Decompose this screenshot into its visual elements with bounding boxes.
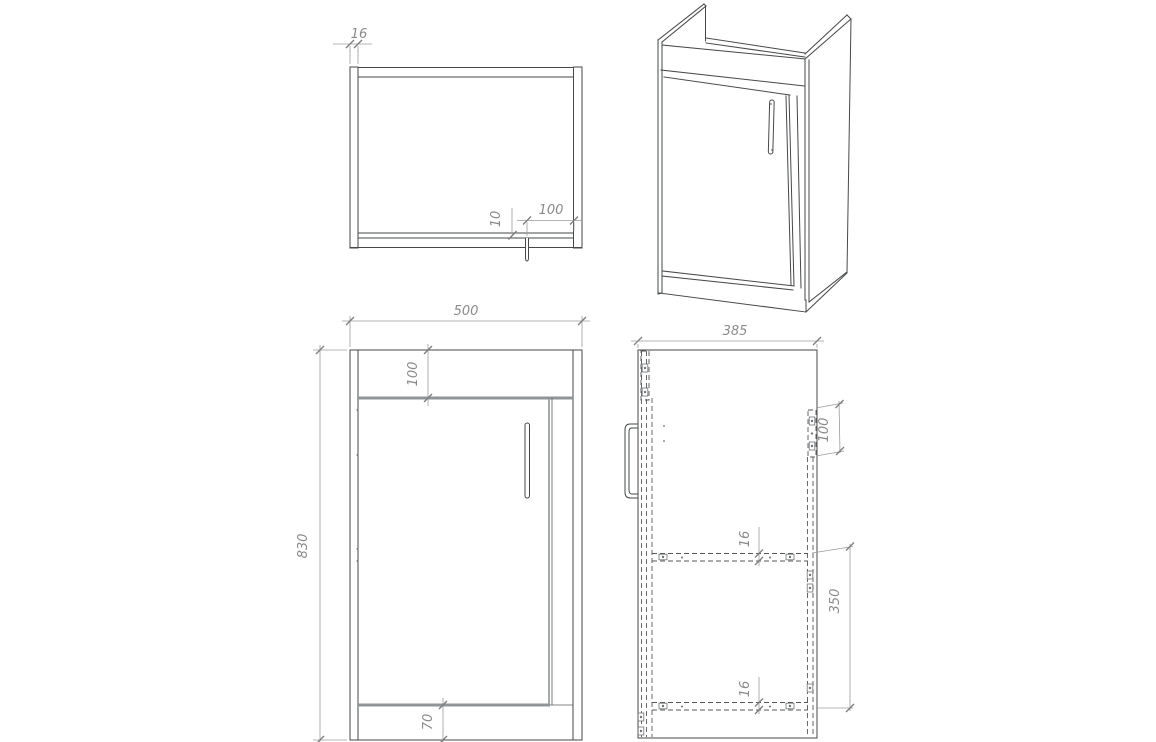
side-hidden-bottom-panel	[638, 703, 808, 736]
side-hidden-back-rail	[808, 410, 816, 457]
front-dim-height: 830	[296, 345, 347, 742]
iso-door	[663, 77, 801, 288]
dim-label-back-rail: 100	[817, 418, 832, 443]
dim-label-handle-offset: 100	[539, 203, 564, 218]
dim-label-plinth: 70	[421, 714, 436, 731]
plan-left-side-panel	[350, 67, 358, 248]
side-view: 385 100 16 16	[625, 324, 854, 738]
isometric-view	[658, 4, 851, 312]
cabinet-drawing-svg: 16 100 10	[0, 0, 1156, 742]
side-hidden-shelf	[652, 554, 808, 562]
side-door-handle	[625, 424, 638, 498]
plan-dim-door-reveal: 10	[489, 208, 517, 240]
dim-label-depth: 385	[723, 324, 748, 339]
dim-label-width: 500	[454, 304, 479, 319]
front-door	[357, 398, 574, 705]
front-door-handle	[525, 423, 530, 498]
side-dim-back-rail: 100	[816, 400, 844, 456]
dim-label-bottom-thickness: 16	[738, 681, 753, 698]
side-hidden-back-panel	[807, 457, 813, 736]
front-view: 500 100 830 70	[296, 304, 590, 742]
plan-dim-panel-thickness: 16	[333, 27, 372, 64]
iso-plinth	[659, 273, 847, 312]
side-dim-bottom-thickness: 16	[738, 677, 763, 714]
iso-left-panel	[658, 4, 706, 294]
side-hinge-mark	[663, 425, 665, 427]
side-hinge-mark	[663, 440, 665, 442]
side-dim-depth: 385	[631, 324, 824, 348]
dim-label-panel-thickness: 16	[351, 27, 368, 42]
side-outline	[638, 350, 817, 738]
front-carcass	[350, 350, 582, 740]
iso-right-panel	[805, 15, 851, 302]
side-dim-shelf-thickness: 16	[738, 527, 763, 566]
dim-label-rail-height: 100	[406, 362, 421, 387]
iso-door-handle	[768, 100, 774, 154]
front-dim-width: 500	[342, 304, 590, 347]
side-hidden-door-lines	[642, 351, 653, 737]
dim-label-shelf-thickness: 16	[738, 531, 753, 548]
technical-drawing-canvas: 16 100 10	[0, 0, 1156, 742]
dim-label-door-reveal: 10	[489, 211, 504, 228]
side-hidden-front-rail	[641, 351, 649, 400]
dim-label-shelf-spacing: 350	[828, 589, 843, 614]
side-dim-shelf-spacing: 350	[812, 543, 854, 713]
dim-label-height: 830	[296, 534, 311, 559]
plan-handle	[526, 238, 529, 261]
top-view: 16 100 10	[333, 27, 583, 261]
